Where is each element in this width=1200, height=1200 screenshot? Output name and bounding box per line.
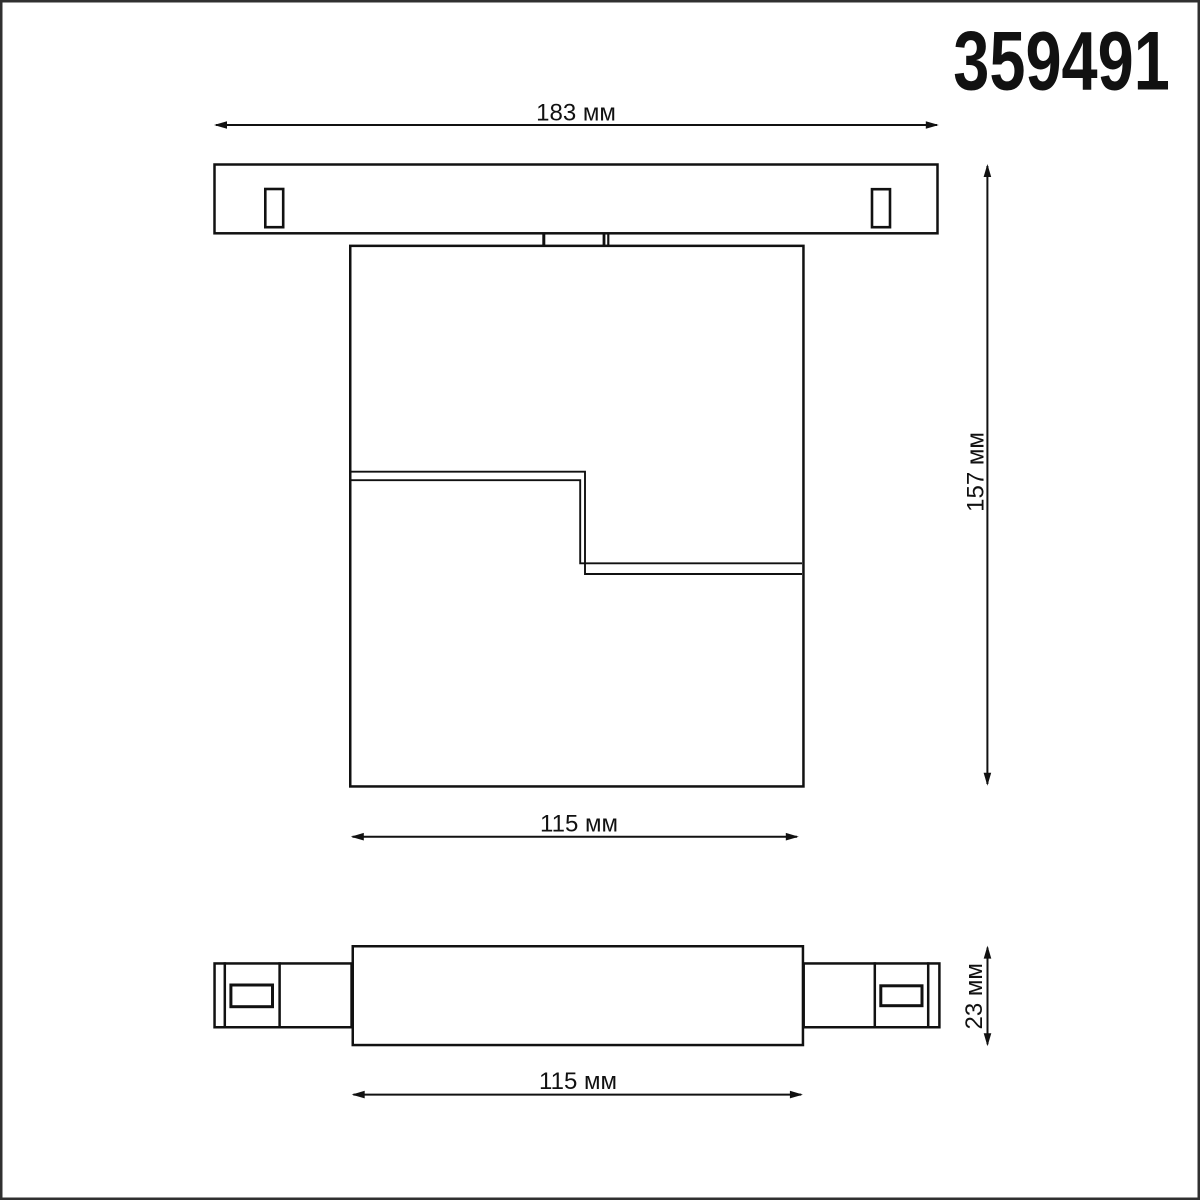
- svg-text:183 мм: 183 мм: [536, 100, 616, 127]
- svg-text:157 мм: 157 мм: [963, 432, 990, 512]
- svg-text:115 мм: 115 мм: [540, 811, 618, 838]
- svg-text:359491: 359491: [953, 13, 1169, 107]
- svg-text:23 мм: 23 мм: [961, 963, 988, 1029]
- svg-text:115 мм: 115 мм: [539, 1068, 617, 1095]
